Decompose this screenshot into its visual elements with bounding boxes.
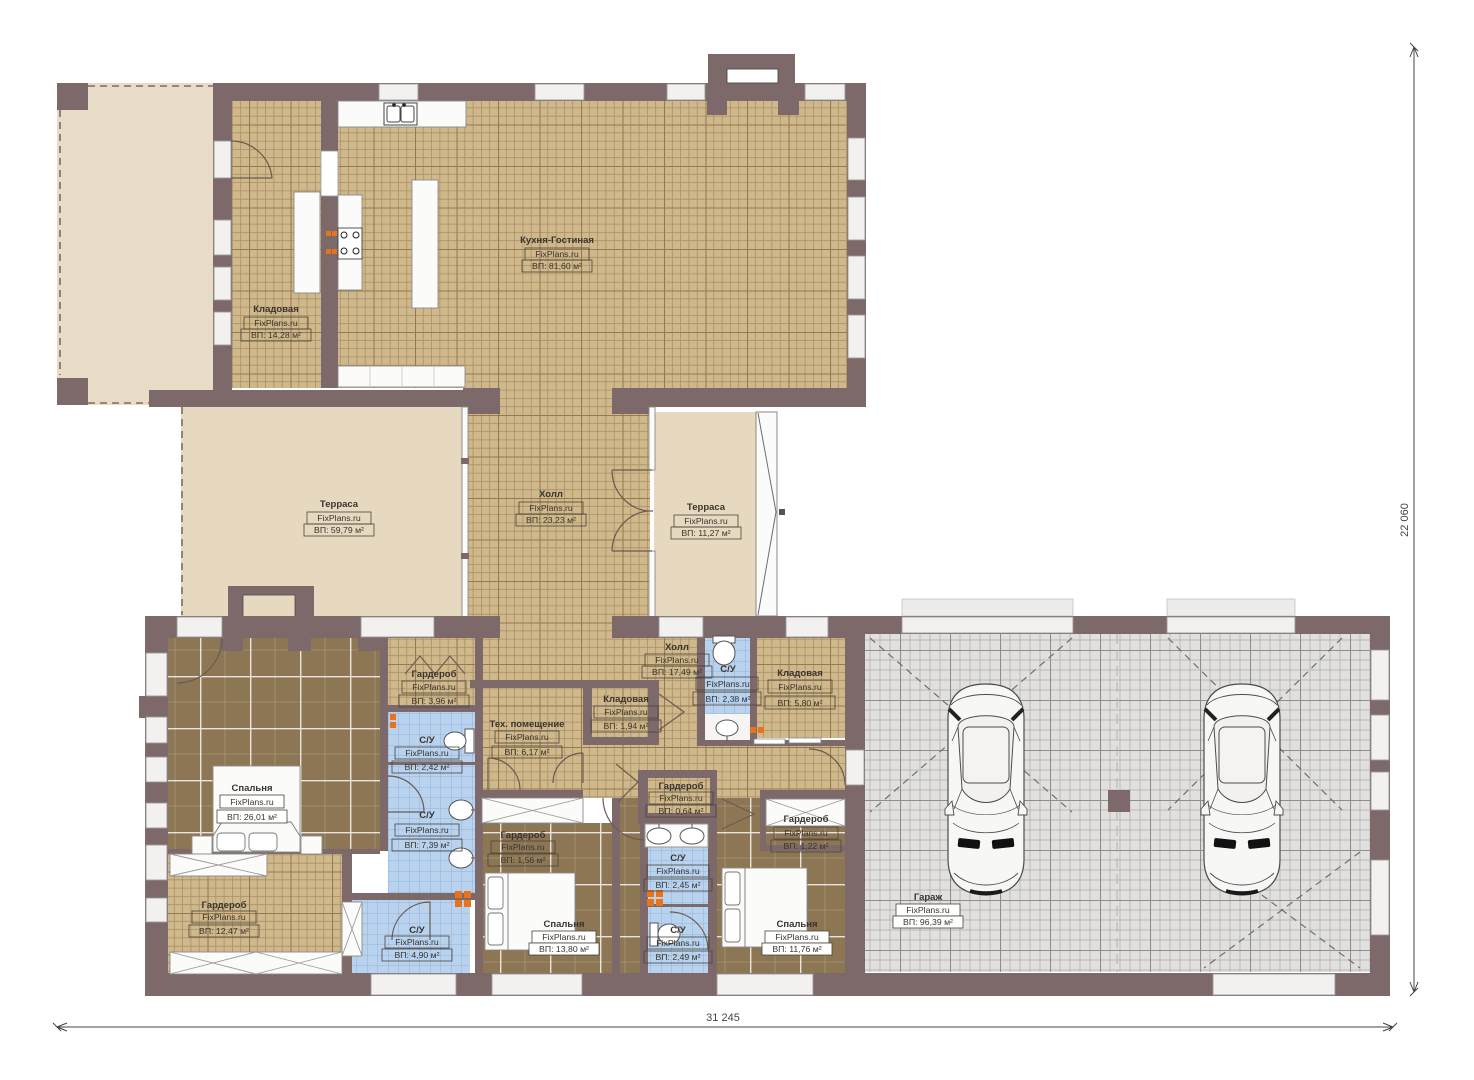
svg-text:FixPlans.ru: FixPlans.ru [395, 937, 439, 947]
svg-text:ВП: 2,49 м²: ВП: 2,49 м² [655, 952, 700, 962]
svg-text:31 245: 31 245 [706, 1012, 740, 1024]
svg-text:Спальня: Спальня [543, 919, 584, 930]
svg-text:ВП: 6,17 м²: ВП: 6,17 м² [504, 747, 549, 757]
svg-text:ВП: 7,39 м²: ВП: 7,39 м² [404, 840, 449, 850]
svg-text:Холл: Холл [665, 642, 689, 653]
svg-text:ВП: 13,80 м²: ВП: 13,80 м² [539, 944, 589, 954]
svg-text:ВП: 1,56 м²: ВП: 1,56 м² [500, 855, 545, 865]
svg-text:FixPlans.ru: FixPlans.ru [775, 932, 819, 942]
svg-text:ВП: 5,80 м²: ВП: 5,80 м² [777, 698, 822, 708]
svg-text:FixPlans.ru: FixPlans.ru [784, 828, 828, 838]
svg-text:FixPlans.ru: FixPlans.ru [656, 866, 700, 876]
svg-text:Гардероб: Гардероб [202, 900, 247, 911]
svg-text:FixPlans.ru: FixPlans.ru [656, 938, 700, 948]
svg-text:С/У: С/У [419, 735, 435, 746]
svg-text:ВП: 2,45 м²: ВП: 2,45 м² [655, 880, 700, 890]
svg-text:Кладовая: Кладовая [777, 668, 823, 679]
svg-text:FixPlans.ru: FixPlans.ru [778, 682, 822, 692]
svg-text:FixPlans.ru: FixPlans.ru [659, 793, 703, 803]
svg-text:Кладовая: Кладовая [253, 304, 299, 315]
svg-text:Спальня: Спальня [776, 919, 817, 930]
svg-text:ВП: 3,96 м²: ВП: 3,96 м² [411, 696, 456, 706]
svg-text:С/У: С/У [419, 810, 435, 821]
svg-text:FixPlans.ru: FixPlans.ru [202, 912, 246, 922]
svg-text:ВП: 2,38 м²: ВП: 2,38 м² [705, 694, 750, 704]
svg-text:Холл: Холл [539, 489, 563, 500]
svg-text:FixPlans.ru: FixPlans.ru [529, 503, 573, 513]
svg-text:Гараж: Гараж [914, 892, 943, 903]
svg-text:FixPlans.ru: FixPlans.ru [542, 932, 586, 942]
svg-text:ВП: 23,23 м²: ВП: 23,23 м² [526, 515, 576, 525]
svg-text:FixPlans.ru: FixPlans.ru [505, 732, 549, 742]
svg-text:22 060: 22 060 [1399, 503, 1411, 537]
svg-text:ВП: 96,39 м²: ВП: 96,39 м² [903, 917, 953, 927]
svg-text:ВП: 0,64 м²: ВП: 0,64 м² [658, 806, 703, 816]
svg-text:FixPlans.ru: FixPlans.ru [317, 513, 361, 523]
svg-text:FixPlans.ru: FixPlans.ru [535, 249, 579, 259]
svg-text:Спальня: Спальня [231, 783, 272, 794]
svg-text:FixPlans.ru: FixPlans.ru [254, 318, 298, 328]
svg-text:Гардероб: Гардероб [784, 814, 829, 825]
svg-text:FixPlans.ru: FixPlans.ru [405, 748, 449, 758]
svg-text:ВП: 1,22 м²: ВП: 1,22 м² [783, 841, 828, 851]
svg-text:FixPlans.ru: FixPlans.ru [655, 655, 699, 665]
svg-text:ВП: 11,76 м²: ВП: 11,76 м² [772, 944, 821, 954]
svg-text:ВП: 11,27 м²: ВП: 11,27 м² [681, 528, 730, 538]
svg-text:FixPlans.ru: FixPlans.ru [501, 842, 545, 852]
svg-text:ВП: 1,94 м²: ВП: 1,94 м² [603, 721, 648, 731]
svg-text:Кухня-Гостиная: Кухня-Гостиная [520, 235, 594, 246]
svg-text:Терраса: Терраса [687, 502, 726, 513]
svg-text:С/У: С/У [720, 664, 736, 675]
svg-text:FixPlans.ru: FixPlans.ru [684, 516, 728, 526]
svg-text:Гардероб: Гардероб [659, 781, 704, 792]
svg-text:С/У: С/У [409, 925, 425, 936]
svg-text:Терраса: Терраса [320, 499, 359, 510]
svg-text:FixPlans.ru: FixPlans.ru [604, 707, 648, 717]
svg-text:Кладовая: Кладовая [603, 694, 649, 705]
svg-text:Гардероб: Гардероб [501, 830, 546, 841]
svg-text:Тех. помещение: Тех. помещение [490, 719, 565, 730]
svg-text:FixPlans.ru: FixPlans.ru [405, 825, 449, 835]
svg-text:ВП: 4,90 м²: ВП: 4,90 м² [394, 950, 439, 960]
svg-text:С/У: С/У [670, 925, 686, 936]
svg-text:ВП: 81,60 м²: ВП: 81,60 м² [532, 261, 582, 271]
svg-text:ВП: 26,01 м²: ВП: 26,01 м² [227, 812, 277, 822]
svg-text:ВП: 59,79 м²: ВП: 59,79 м² [314, 525, 364, 535]
svg-text:FixPlans.ru: FixPlans.ru [412, 682, 456, 692]
svg-text:FixPlans.ru: FixPlans.ru [706, 679, 750, 689]
svg-text:ВП: 17,49 м²: ВП: 17,49 м² [652, 667, 702, 677]
svg-text:FixPlans.ru: FixPlans.ru [906, 905, 950, 915]
svg-text:ВП: 2,42 м²: ВП: 2,42 м² [404, 762, 449, 772]
svg-text:С/У: С/У [670, 853, 686, 864]
svg-text:FixPlans.ru: FixPlans.ru [230, 797, 274, 807]
svg-text:ВП: 12,47 м²: ВП: 12,47 м² [199, 926, 249, 936]
svg-text:ВП: 14,28 м²: ВП: 14,28 м² [251, 330, 301, 340]
svg-text:Гардероб: Гардероб [412, 669, 457, 680]
